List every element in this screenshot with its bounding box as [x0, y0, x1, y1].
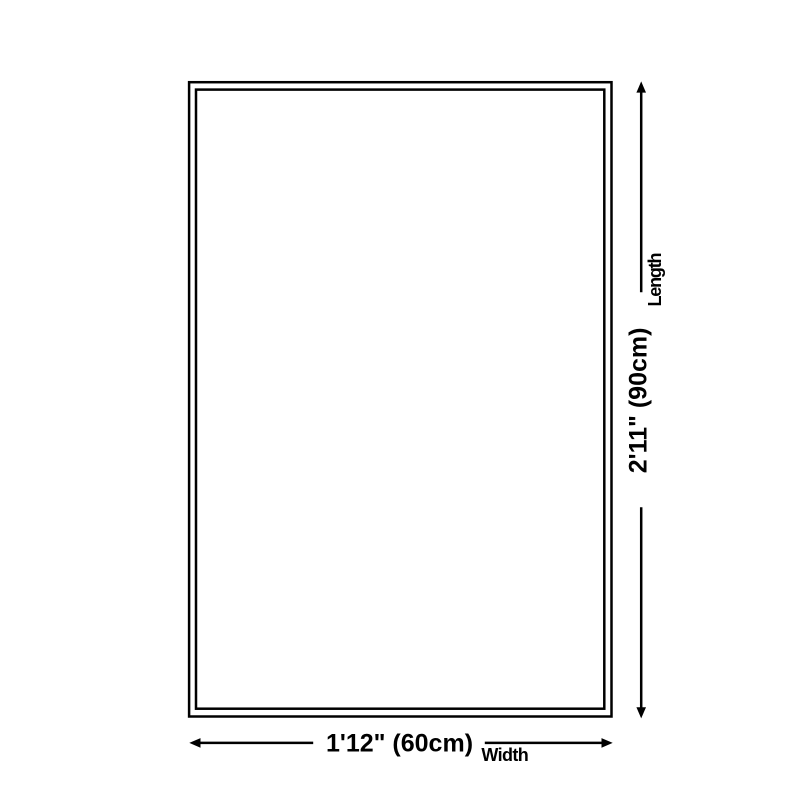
- svg-text:1'12" (60cm): 1'12" (60cm): [326, 730, 473, 758]
- svg-text:Width: Width: [481, 745, 528, 765]
- svg-text:Length: Length: [645, 254, 665, 307]
- svg-text:2'11" (90cm): 2'11" (90cm): [625, 328, 653, 474]
